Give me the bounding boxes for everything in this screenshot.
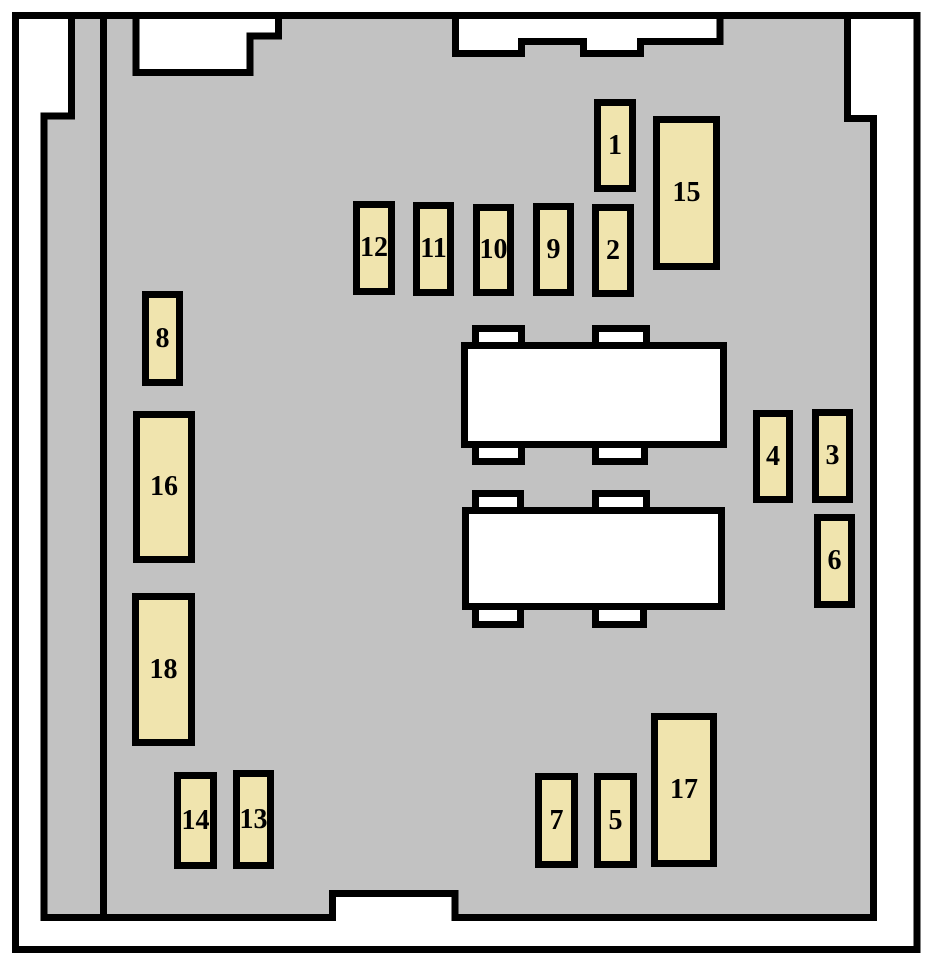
fuse-1: 1 — [594, 99, 636, 192]
fuse-16: 16 — [133, 411, 195, 563]
fuse-box-diagram: 115121110928164361817141375 — [0, 0, 930, 966]
fuse-12: 12 — [353, 201, 395, 295]
fuse-3: 3 — [812, 409, 853, 503]
fuse-15: 15 — [653, 116, 720, 270]
fuse-10: 10 — [473, 204, 514, 296]
fuse-8: 8 — [142, 291, 183, 386]
fuse-6: 6 — [814, 514, 855, 608]
fuse-4: 4 — [753, 410, 793, 503]
fuse-5: 5 — [594, 773, 637, 868]
fuse-9: 9 — [533, 203, 574, 296]
fuse-2: 2 — [592, 204, 634, 297]
relay-block-2 — [462, 507, 725, 610]
fuse-7: 7 — [535, 773, 578, 868]
fuse-13: 13 — [233, 770, 274, 869]
fuse-17: 17 — [651, 713, 717, 867]
fuse-11: 11 — [413, 202, 454, 296]
fuse-18: 18 — [132, 593, 195, 746]
relay-block-1 — [461, 342, 727, 448]
fuse-14: 14 — [174, 772, 217, 869]
